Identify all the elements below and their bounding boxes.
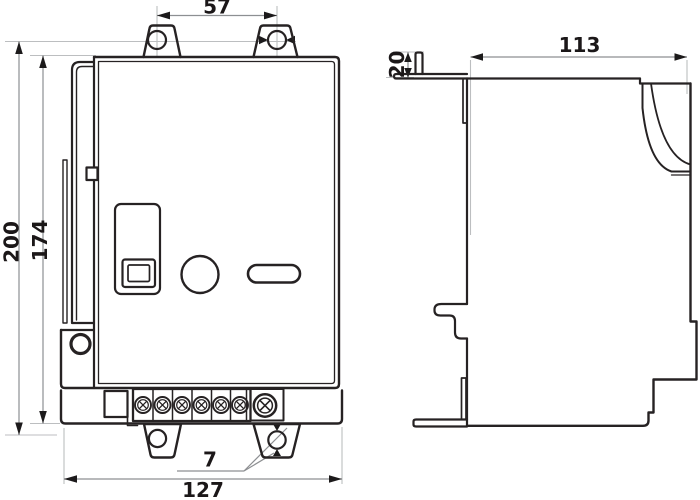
led-hole	[71, 335, 90, 354]
terminal-block	[105, 389, 284, 426]
dim-overall-width: 127	[182, 478, 224, 500]
terminal-screw	[155, 397, 171, 413]
left-hinge-strip	[61, 62, 98, 330]
slot-opening	[248, 265, 300, 283]
bottom-rib	[462, 378, 467, 420]
push-button-inner	[128, 265, 150, 282]
body-outline	[61, 57, 339, 388]
front-view	[61, 26, 342, 458]
technical-drawing: 57 200 174 113 20 7 127	[0, 0, 700, 500]
dim-depth: 113	[559, 33, 601, 57]
round-knockout	[182, 256, 219, 293]
terminal-screw	[135, 397, 151, 413]
base-outline	[61, 391, 342, 424]
terminal-screw	[194, 397, 210, 413]
bottom-and-back-outline	[467, 84, 697, 426]
terminal-screw	[232, 397, 248, 413]
dim-tab-height: 20	[385, 51, 409, 79]
dimension-lines	[19, 16, 687, 480]
terminal-screw	[213, 397, 229, 413]
side-view	[394, 53, 697, 427]
latch-hook	[435, 304, 468, 339]
dim-body-height: 174	[28, 220, 52, 262]
top-tab-profile	[416, 53, 423, 75]
bottom-mounting-tab-left	[144, 424, 181, 458]
body-inner-line	[99, 62, 335, 384]
earth-terminal-screw	[251, 389, 284, 421]
left-edge-plate	[63, 160, 67, 323]
corner-channel-inner	[643, 84, 672, 172]
dim-hole-diameter: 7	[203, 448, 217, 472]
top-back-step	[640, 79, 691, 84]
mounting-hole	[149, 430, 166, 447]
latch-clip	[87, 168, 98, 181]
dim-top-hole-spacing: 57	[203, 0, 231, 19]
drawing-canvas: 57 200 174 113 20 7 127	[0, 0, 700, 500]
terminal-screw	[174, 397, 190, 413]
bottom-flange-plate	[414, 420, 468, 427]
corner-channel-outer	[651, 84, 691, 165]
dim-overall-height: 200	[0, 221, 24, 263]
mounting-hole	[268, 431, 285, 448]
terminal-left-box	[105, 391, 128, 417]
